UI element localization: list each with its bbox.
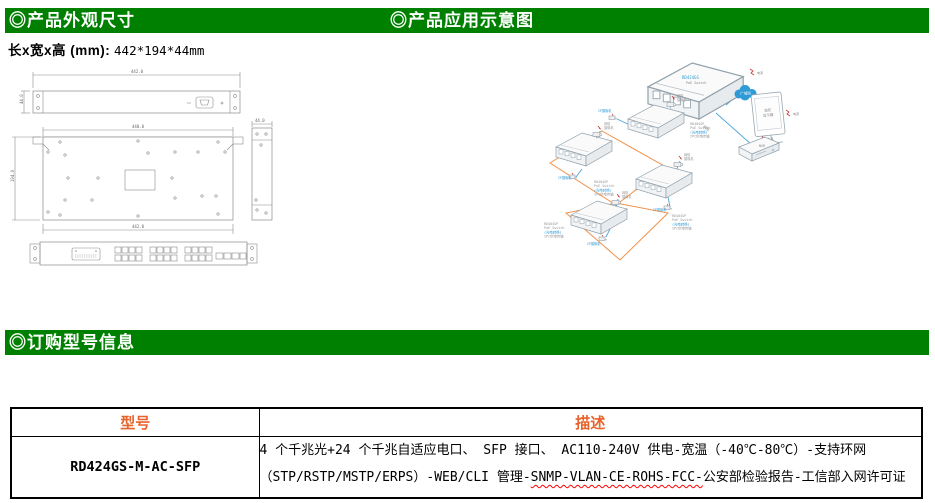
dimensions-line: 长x宽x高 (mm): 442*194*44mm (8, 39, 204, 59)
description-line-2-spellcheck: SNMP-VLAN-CE-ROHS-FCC- (531, 470, 703, 485)
svg-text:摄像机: 摄像机 (622, 194, 632, 199)
svg-text:IP摄像机: IP摄像机 (598, 108, 612, 113)
description-line-2-post: 公安部检验报告-工信部入网许可证 (703, 470, 906, 485)
svg-text:摄像机: 摄像机 (684, 156, 694, 161)
core-switch-type: PoE Switch (686, 81, 706, 85)
svg-text:RD404GP PoE Switch: RD404GP PoE Switch (光电转换) IPC供电传输 (544, 222, 566, 239)
top-depth-dim: 194.0 (10, 169, 15, 182)
wall-camera-4 (599, 235, 607, 241)
svg-text:IP摄像机: IP摄像机 (653, 207, 667, 212)
model-cell: RD424GS-M-AC-SFP (11, 437, 259, 499)
description-cell: 4 个千兆光+24 个千兆自适应电口、 SFP 接口、 AC110-240V 供… (259, 437, 922, 499)
side-view-drawing: 44.0 (252, 118, 272, 220)
model-column-header: 型号 (11, 408, 259, 437)
svg-text:IP摄像机: IP摄像机 (587, 241, 601, 246)
ordering-section-bar: ◎订购型号信息 (5, 330, 929, 355)
top-view-drawing: 440.0 (10, 124, 243, 234)
page: ◎产品外观尺寸 ◎产品应用示意图 长x宽x高 (mm): 442*194*44m… (0, 0, 935, 503)
svg-text:RD404GP PoE Switch: RD404GP PoE Switch (光电转换) IPC供电传输 (594, 180, 616, 197)
section-title-dimensions: ◎产品外观尺寸 (9, 8, 135, 33)
section-title-application: ◎产品应用示意图 (390, 8, 534, 33)
poe-switch-2 (556, 133, 612, 166)
svg-text:摄像机: 摄像机 (604, 125, 614, 130)
top-section-bar: ◎产品外观尺寸 ◎产品应用示意图 (5, 8, 929, 33)
description-line-2: （STP/RSTP/MSTP/ERPS）-WEB/CLI 管理-SNMP-VLA… (260, 464, 922, 491)
top-width2-dim: 442.0 (132, 224, 145, 229)
side-width-dim: 44.0 (255, 118, 265, 123)
cloud-label: 广域网 (740, 91, 751, 96)
core-switch-model: RD424GS (682, 75, 699, 80)
nvr-box: NVR (739, 137, 779, 161)
rear-width-dim: 442.0 (131, 69, 144, 74)
description-line-2-pre: （STP/RSTP/MSTP/ERPS）-WEB/CLI 管理- (260, 470, 531, 485)
dimension-drawings: 442.0 44.0 440.0 (0, 60, 300, 295)
poe-switch-4 (571, 201, 627, 234)
application-diagram: 光纤 光纤 网线 RD424GS PoE Switch (520, 55, 935, 305)
monitor-label-1: 监控 (764, 107, 772, 113)
svg-text:IP摄像机: IP摄像机 (558, 175, 572, 180)
power-label-2: 电源 (793, 111, 799, 116)
description-line-1: 4 个千兆光+24 个千兆自适应电口、 SFP 接口、 AC110-240V 供… (260, 437, 922, 464)
ordering-table-header-row: 型号 描述 (11, 408, 922, 437)
rear-height-dim: 44.0 (19, 94, 24, 104)
svg-text:摄像机: 摄像机 (677, 97, 687, 102)
power-label-1: 电源 (757, 70, 763, 75)
svg-text:RD404GP PoE Switch: RD404GP PoE Switch (光电转换) IPC供电传输 (690, 122, 712, 139)
nvr-label: NVR (759, 144, 766, 148)
description-column-header: 描述 (259, 408, 922, 437)
svg-text:RD404GP PoE Switch: RD404GP PoE Switch (光电转换) IPC供电传输 (672, 214, 694, 231)
dimensions-label: 长x宽x高 (mm): (8, 43, 110, 58)
poe-switch-3 (636, 165, 692, 198)
ordering-table-row: RD424GS-M-AC-SFP 4 个千兆光+24 个千兆自适应电口、 SFP… (11, 437, 922, 499)
rear-view-drawing: 442.0 44.0 (19, 69, 240, 113)
wall-camera-1 (609, 114, 617, 120)
ip-camera-3 (674, 156, 683, 169)
ordering-table: 型号 描述 RD424GS-M-AC-SFP 4 个千兆光+24 个千兆自适应电… (10, 407, 923, 499)
front-view-drawing (30, 242, 257, 265)
top-width-dim: 440.0 (132, 124, 145, 129)
section-title-ordering: ◎订购型号信息 (9, 330, 135, 355)
dimensions-value: 442*194*44mm (114, 43, 204, 58)
